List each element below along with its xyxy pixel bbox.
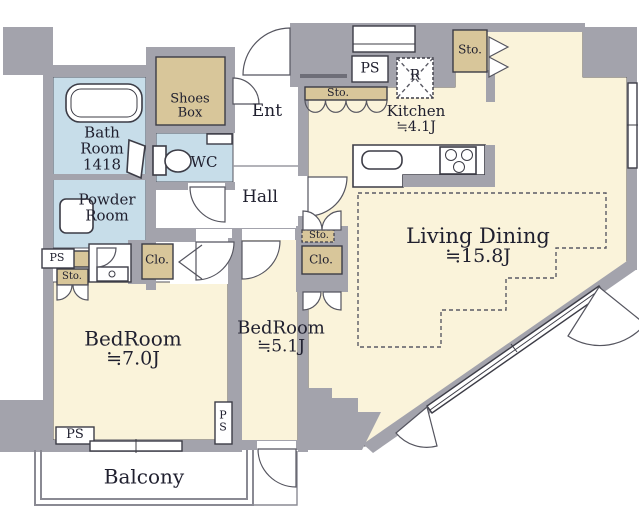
floor-plan: BathRoom1418 PowderRoom WC ShoesBox Ent … [0, 0, 639, 511]
toilet-tank-icon [153, 146, 166, 175]
refrigerator-label: R [410, 69, 421, 84]
vanity-basin [97, 267, 128, 281]
wall-wc-top [150, 125, 235, 133]
bath-folding-door [127, 140, 145, 178]
top-niche [353, 26, 415, 52]
bath-room-label: BathRoom1418 [80, 125, 124, 172]
wall-left [43, 77, 53, 405]
balcony-label: Balcony [104, 467, 184, 488]
ps-top-label: PS [360, 62, 379, 77]
toilet-bowl-icon [165, 150, 191, 172]
entrance-door-arc [243, 28, 290, 75]
ps-vertical-label: PS [219, 409, 227, 432]
ps-left-label: PS [50, 252, 65, 264]
wc-door-arc [190, 187, 225, 222]
bedroom7-door-gap [196, 229, 232, 242]
storage-top-right-label: Sto. [458, 44, 482, 57]
ps-bottom-label: PS [66, 428, 84, 442]
wall-lintel-line [300, 74, 347, 78]
kitchen-label: Kitchen≒4.1J [387, 104, 446, 134]
hall-label: Hall [242, 189, 278, 207]
storage-left-label: Sto. [62, 272, 82, 283]
kitchen-counter-end-wall [485, 145, 495, 177]
closet-left-label: Clo. [145, 254, 169, 267]
ps-left-tan-box [73, 251, 89, 267]
wall-top-right-block [583, 27, 637, 77]
wall-wc-bottom-left [150, 182, 188, 190]
wall-shoes-top [150, 47, 235, 57]
entrance-label: Ent [252, 103, 282, 121]
shoes-box-label: ShoesBox [170, 92, 209, 119]
living-dining-label: Living Dining≒15.8J [406, 225, 550, 267]
storage-kitchen-label: Sto. [327, 87, 349, 99]
bedroom7-label: BedRoom≒7.0J [84, 329, 181, 370]
wall-bath-top [43, 65, 158, 77]
bedroom5-balcony-door-arc [258, 449, 296, 487]
closet-mid-label: Clo. [309, 254, 333, 267]
wall-wc-bottom-right [225, 182, 235, 190]
storage-mid-label: Sto. [309, 231, 329, 242]
bedroom5-label: BedRoom≒5.1J [237, 320, 325, 357]
wc-shelf-box [207, 134, 232, 144]
kitchen-sink-icon [362, 151, 402, 169]
bedroom5-door-gap [242, 229, 295, 240]
wc-label: WC [191, 155, 218, 171]
powder-room-label: PowderRoom [78, 192, 135, 224]
kitchen-backsplash [403, 175, 495, 187]
